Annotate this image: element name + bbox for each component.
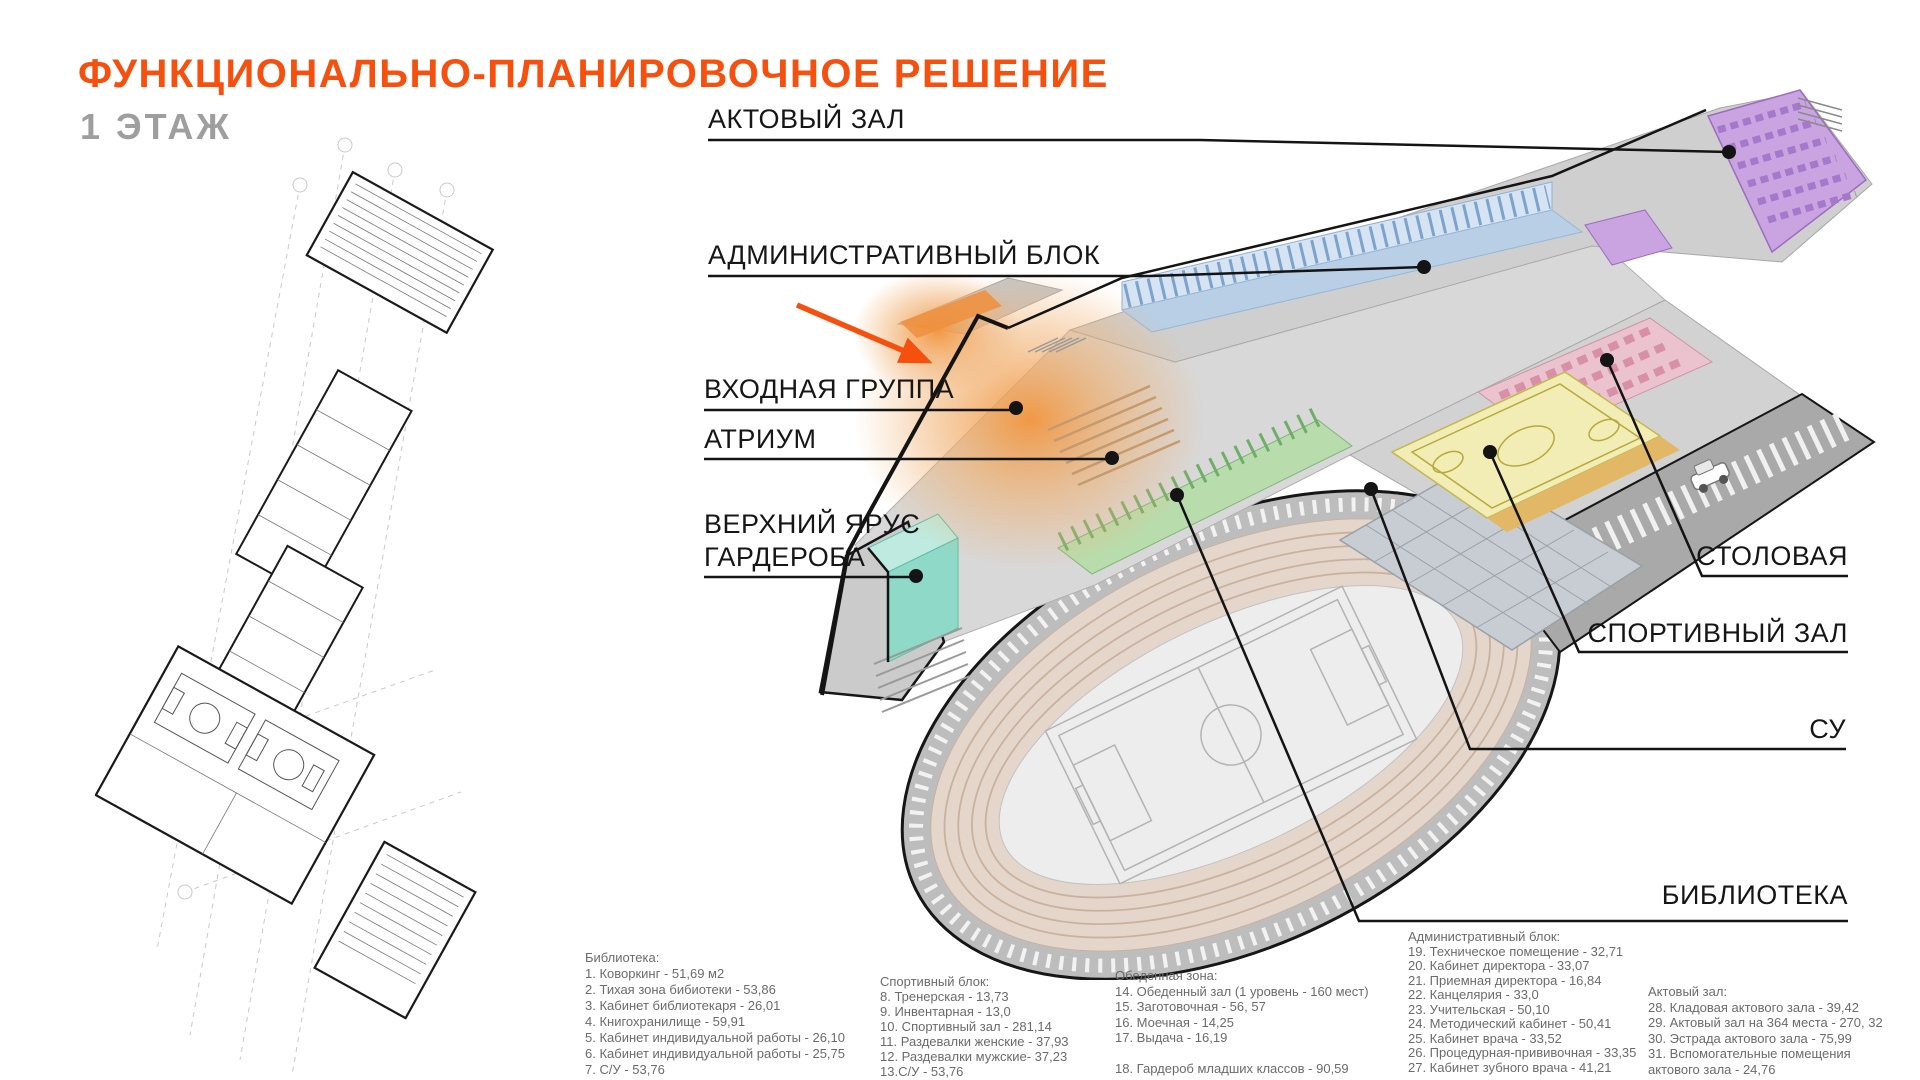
label-library: БИБЛИОТЕКА xyxy=(1662,879,1848,912)
legend-item: 13.С/У - 53,76 xyxy=(880,1064,1110,1079)
legend-item: 31. Вспомогательные помещения актового з… xyxy=(1648,1046,1903,1077)
legend-column-assembly: Актовый зал: 28. Кладовая актового зала … xyxy=(1648,984,1903,1077)
legend-item: 22. Канцелярия - 33,0 xyxy=(1408,988,1678,1003)
legend-item: 30. Эстрада актового зала - 75,99 xyxy=(1648,1031,1903,1047)
legend-title: Спортивный блок: xyxy=(880,974,1110,989)
legend-item: 24. Методический кабинет - 50,41 xyxy=(1408,1017,1678,1032)
legend-item: 14. Обеденный зал (1 уровень - 160 мест) xyxy=(1115,984,1405,1000)
legend-item: 2. Тихая зона бибиотеки - 53,86 xyxy=(585,982,875,998)
legend-item: 4. Книгохранилище - 59,91 xyxy=(585,1014,875,1030)
legend-item: 11. Раздевалки женские - 37,93 xyxy=(880,1034,1110,1049)
legend-column-library: Библиотека: 1. Коворкинг - 51,69 м22. Ти… xyxy=(585,950,875,1078)
label-dining: СТОЛОВАЯ xyxy=(1696,540,1848,573)
legend-item: 12. Раздевалки мужские- 37,23 xyxy=(880,1049,1110,1064)
label-wardrobe-tier: ВЕРХНИЙ ЯРУС ГАРДЕРОБА xyxy=(704,508,920,574)
legend-item: 28. Кладовая актового зала - 39,42 xyxy=(1648,1000,1903,1016)
legend-item: 15. Заготовочная - 56, 57 xyxy=(1115,999,1405,1015)
legend-item: 26. Процедурная-прививочная - 33,35 xyxy=(1408,1046,1678,1061)
legend-column-admin: Административный блок: 19. Техническое п… xyxy=(1408,930,1678,1075)
legend-item: 29. Актовый зал на 364 места - 270, 32 xyxy=(1648,1015,1903,1031)
legend-column-dining: Обеденная зона: 14. Обеденный зал (1 уро… xyxy=(1115,968,1405,1077)
legend-item: 23. Учительская - 50,10 xyxy=(1408,1003,1678,1018)
legend-item: 7. С/У - 53,76 xyxy=(585,1062,875,1078)
legend-item: 1. Коворкинг - 51,69 м2 xyxy=(585,966,875,982)
label-assembly-hall: АКТОВЫЙ ЗАЛ xyxy=(708,103,905,136)
label-su: СУ xyxy=(1809,713,1846,746)
legend-item: 25. Кабинет врача - 33,52 xyxy=(1408,1032,1678,1047)
plan-assembly-hall xyxy=(307,172,493,333)
plan-sport-wing xyxy=(96,646,374,903)
legend-item: 16. Моечная - 14,25 xyxy=(1115,1015,1405,1031)
legend-column-sport: Спортивный блок: 8. Тренерская - 13,739.… xyxy=(880,974,1110,1079)
legend-item: 3. Кабинет библиотекаря - 26,01 xyxy=(585,998,875,1014)
legend-item: 27. Кабинет зубного врача - 41,21 xyxy=(1408,1061,1678,1076)
label-admin-block: АДМИНИСТРАТИВНЫЙ БЛОК xyxy=(708,239,1100,272)
legend-title: Обеденная зона: xyxy=(1115,968,1405,984)
legend-item: 20. Кабинет директора - 33,07 xyxy=(1408,959,1678,974)
legend-title: Библиотека: xyxy=(585,950,875,966)
legend-item: 21. Приемная директора - 16,84 xyxy=(1408,974,1678,989)
legend-title: Актовый зал: xyxy=(1648,984,1903,1000)
legend-item: 18. Гардероб младших классов - 90,59 xyxy=(1115,1061,1405,1077)
legend-title: Административный блок: xyxy=(1408,930,1678,945)
label-atrium: АТРИУМ xyxy=(704,423,816,456)
legend-item xyxy=(1115,1046,1405,1062)
plan-library-block xyxy=(315,842,476,1018)
legend-item: 10. Спортивный зал - 281,14 xyxy=(880,1019,1110,1034)
slide: ФУНКЦИОНАЛЬНО-ПЛАНИРОВОЧНОЕ РЕШЕНИЕ 1 ЭТ… xyxy=(0,0,1920,1080)
plan-corridor-block xyxy=(236,370,411,594)
legend-item: 8. Тренерская - 13,73 xyxy=(880,989,1110,1004)
legend-item: 19. Техническое помещение - 32,71 xyxy=(1408,945,1678,960)
legend-item: 6. Кабинет индивидуальной работы - 25,75 xyxy=(585,1046,875,1062)
legend-item: 5. Кабинет индивидуальной работы - 26,10 xyxy=(585,1030,875,1046)
legend-item: 9. Инвентарная - 13,0 xyxy=(880,1004,1110,1019)
label-entrance-group: ВХОДНАЯ ГРУППА xyxy=(704,373,954,406)
floor-plan-2d xyxy=(95,130,595,1080)
legend-item: 17. Выдача - 16,19 xyxy=(1115,1030,1405,1046)
label-sport-hall: СПОРТИВНЫЙ ЗАЛ xyxy=(1587,617,1848,650)
